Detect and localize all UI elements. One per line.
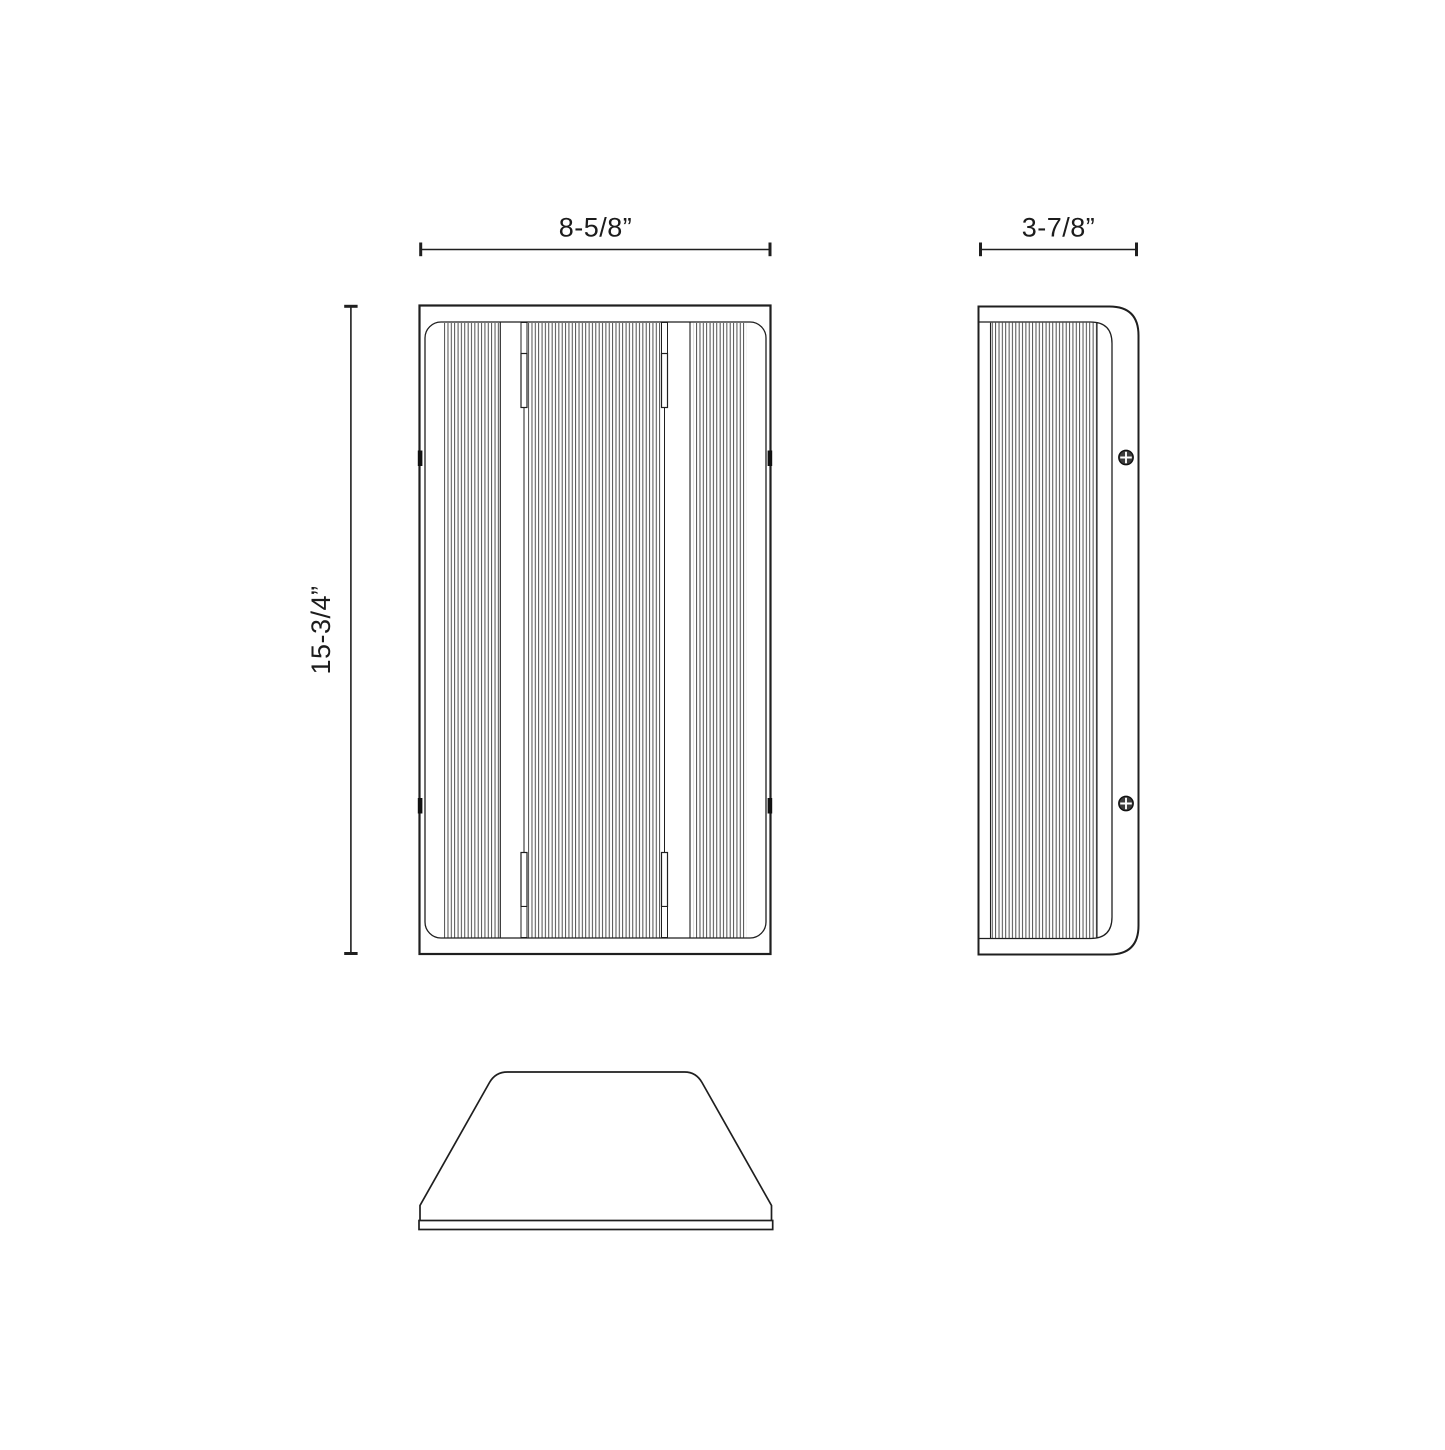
side-rib-field [991,323,1098,938]
dimension-drawing: 8-5/8” 3-7/8” 15-3/4” [0,0,1445,1445]
side-profile-view [979,307,1139,955]
rib-field-left [444,323,501,938]
depth-dimension-label: 3-7/8” [1022,213,1096,243]
rib-field-right [694,323,747,938]
bottom-face-plate [419,1221,773,1230]
rib-field-center [528,323,661,938]
mounting-screw-bottom [1119,796,1133,810]
side-fluted-glass-ribs [991,323,1098,938]
height-dimension-label: 15-3/4” [306,585,336,674]
front-fluted-glass-ribs [444,323,747,938]
front-view [418,306,772,955]
width-dimension-label: 8-5/8” [559,213,633,243]
mounting-screw-top [1119,450,1133,464]
drawing-canvas: 8-5/8” 3-7/8” 15-3/4” [0,0,1445,1445]
